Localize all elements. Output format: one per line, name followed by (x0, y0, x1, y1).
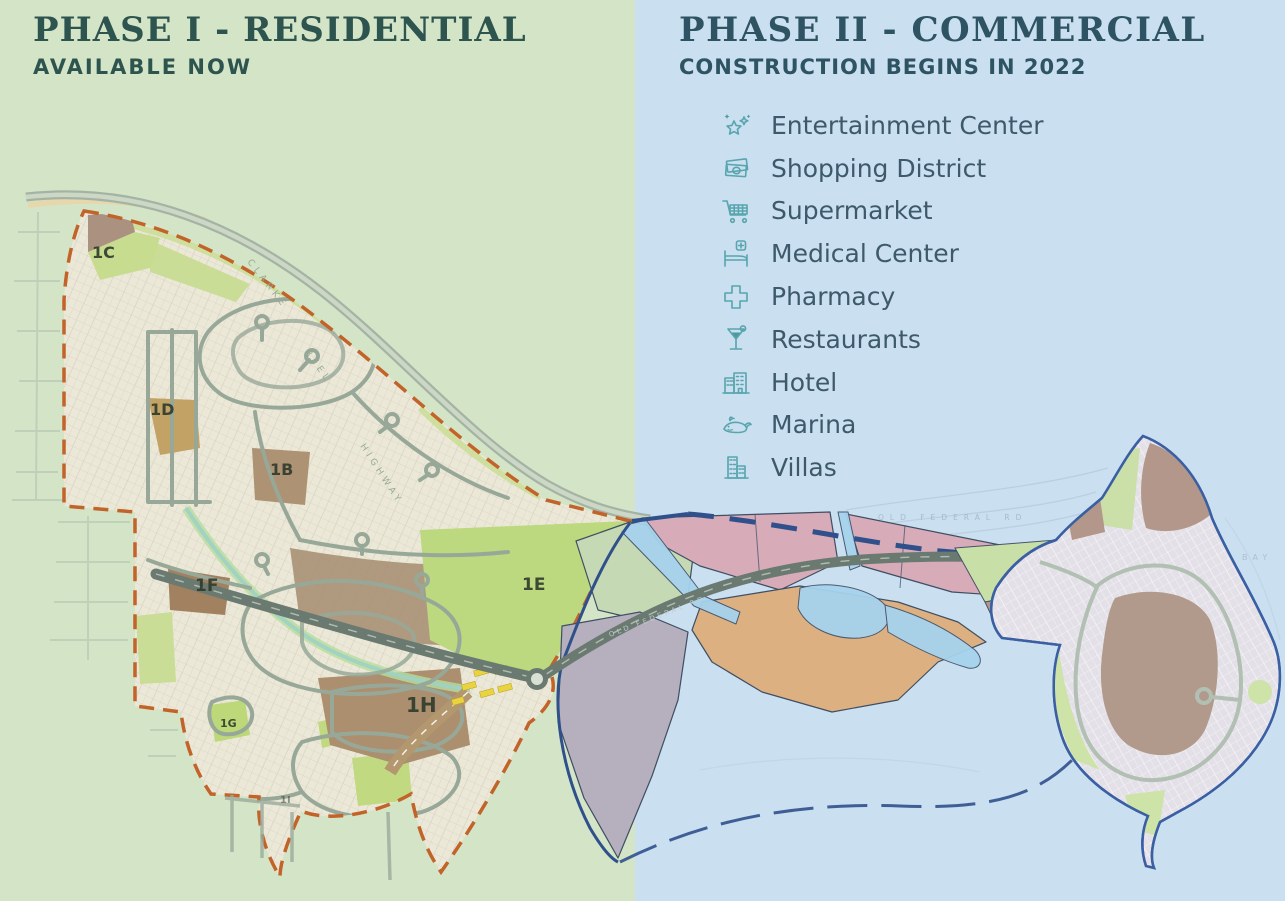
phase2-subtitle: CONSTRUCTION BEGINS IN 2022 (679, 55, 1206, 79)
phase2-header: PHASE II - COMMERCIAL CONSTRUCTION BEGIN… (679, 12, 1206, 79)
money-icon (714, 152, 758, 184)
parcel-label-1h: 1H (406, 693, 437, 717)
amenity-label: Villas (771, 453, 837, 482)
parcel-label-1c: 1C (92, 243, 115, 262)
phase1-header: PHASE I - RESIDENTIAL AVAILABLE NOW (33, 12, 527, 79)
amenity-item-marina: Marina (714, 404, 1044, 447)
phase2-title: PHASE II - COMMERCIAL (679, 12, 1206, 49)
amenity-label: Entertainment Center (771, 111, 1044, 140)
phase1-subtitle: AVAILABLE NOW (33, 55, 527, 79)
bay-label: BAY (1242, 553, 1272, 562)
amenity-label: Hotel (771, 368, 837, 397)
whale-icon (714, 409, 758, 441)
amenity-label: Shopping District (771, 154, 986, 183)
island-center-open-space (1101, 592, 1218, 755)
amenity-item-restaurants: Restaurants (714, 318, 1044, 361)
site-plan-page: 1C 1D 1B 1F 1E 1G 1H 1I CLARKE REEL HIGH… (0, 0, 1285, 901)
phase2-amenity-list: Entertainment Center Shopping District S… (714, 104, 1044, 489)
medical-bed-icon (714, 238, 758, 270)
amenity-label: Supermarket (771, 196, 933, 225)
parcel-label-1f: 1F (195, 576, 218, 596)
parcel-label-1e: 1E (522, 575, 545, 595)
amenity-item-shopping: Shopping District (714, 147, 1044, 190)
roundabout (529, 671, 546, 688)
amenity-item-supermarket: Supermarket (714, 190, 1044, 233)
parcel-label-1d: 1D (150, 400, 174, 419)
amenity-item-entertainment: Entertainment Center (714, 104, 1044, 147)
parcel-label-1i: 1I (280, 795, 291, 806)
amenity-item-pharmacy: Pharmacy (714, 275, 1044, 318)
amenity-label: Restaurants (771, 325, 921, 354)
hotel-icon (714, 366, 758, 398)
amenity-item-villas: Villas (714, 446, 1044, 489)
amenity-item-hotel: Hotel (714, 361, 1044, 404)
stars-icon (714, 109, 758, 141)
pharmacy-cross-icon (714, 281, 758, 313)
villas-icon (714, 452, 758, 484)
parcel-label-1g: 1G (220, 717, 237, 730)
cocktail-icon (714, 323, 758, 355)
amenity-label: Pharmacy (771, 282, 895, 311)
amenity-label: Medical Center (771, 239, 959, 268)
shore-road-label: OLD FEDERAL RD (878, 513, 1027, 522)
parcel-label-1b: 1B (270, 460, 293, 479)
amenity-item-medical: Medical Center (714, 232, 1044, 275)
amenity-label: Marina (771, 410, 856, 439)
cart-icon (714, 195, 758, 227)
phase1-title: PHASE I - RESIDENTIAL (33, 12, 527, 49)
master-plan-map: 1C 1D 1B 1F 1E 1G 1H 1I CLARKE REEL HIGH… (0, 0, 1285, 901)
